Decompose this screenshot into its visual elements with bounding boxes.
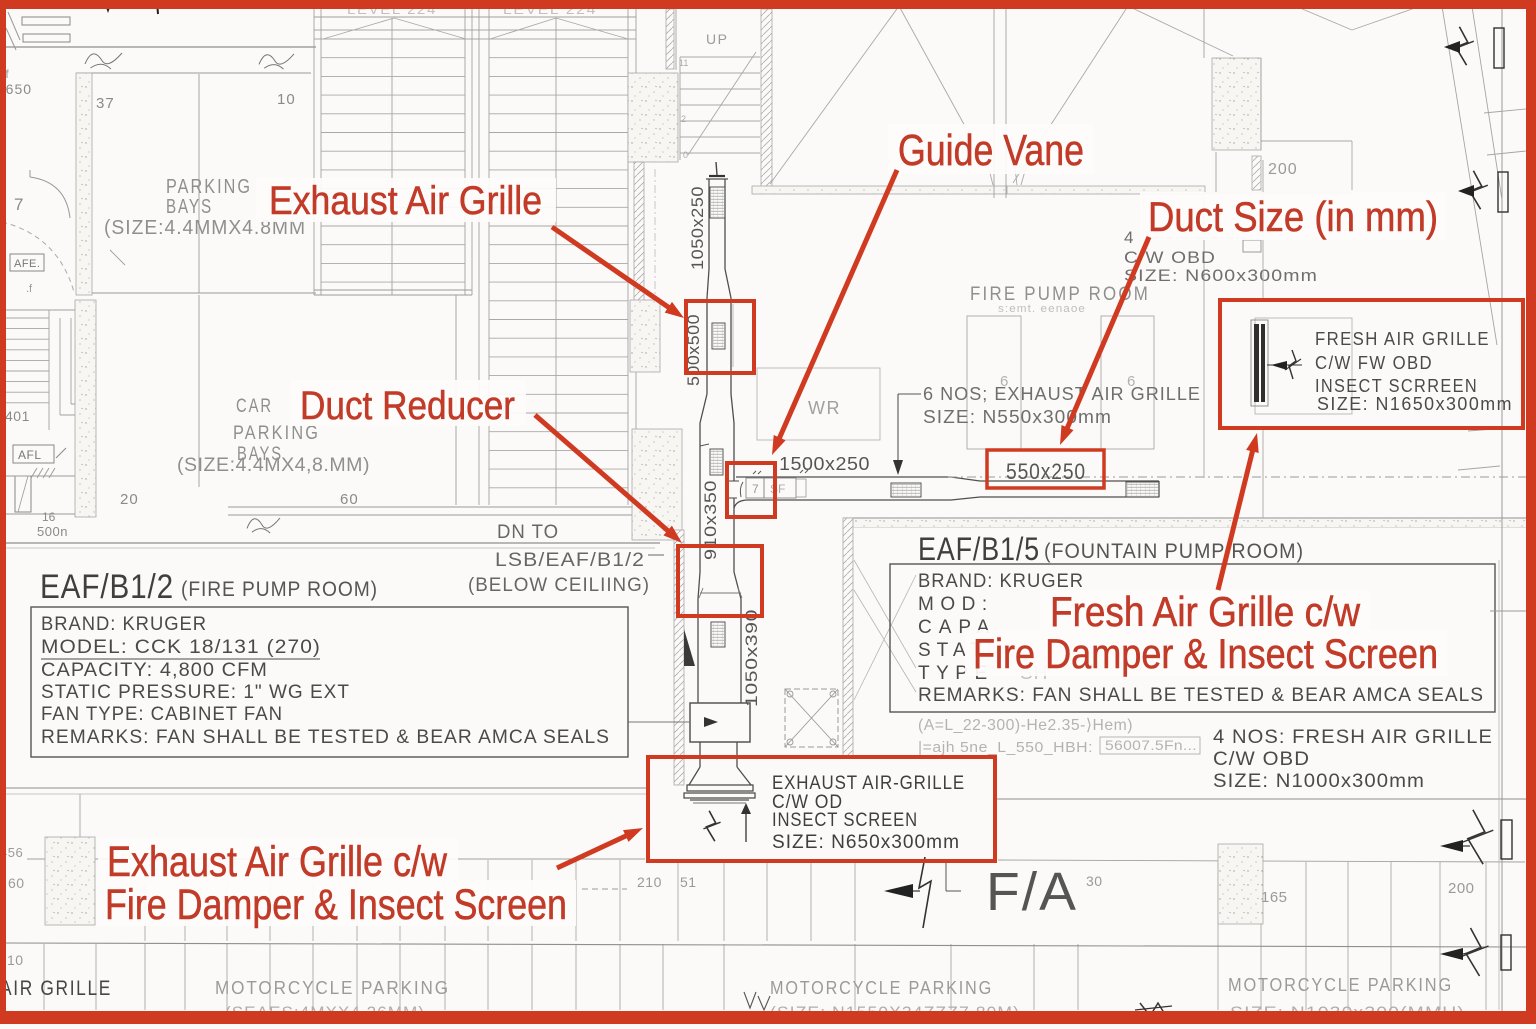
svg-text:Exhaust Air Grille c/w: Exhaust Air Grille c/w bbox=[107, 838, 448, 886]
svg-text:|=ajh 5ne_L_550_HBH:: |=ajh 5ne_L_550_HBH: bbox=[918, 739, 1093, 756]
svg-text:10: 10 bbox=[7, 952, 24, 968]
svg-text:1050x390: 1050x390 bbox=[742, 609, 761, 707]
svg-text:AFE.: AFE. bbox=[14, 258, 40, 270]
svg-text:.f: .f bbox=[26, 283, 33, 295]
svg-text:500n: 500n bbox=[37, 524, 68, 539]
svg-text:EAF/B1/2: EAF/B1/2 bbox=[40, 568, 174, 606]
svg-text:16: 16 bbox=[42, 510, 56, 524]
svg-text:6 NOS; EXHAUST AIR GRILLE: 6 NOS; EXHAUST AIR GRILLE bbox=[923, 384, 1201, 404]
svg-text:MOTORCYCLE PARKING: MOTORCYCLE PARKING bbox=[770, 978, 993, 998]
svg-text:MODEL: CCK 18/131 (270): MODEL: CCK 18/131 (270) bbox=[41, 637, 321, 658]
svg-text:Fire Damper & Insect Screen: Fire Damper & Insect Screen bbox=[105, 881, 567, 929]
svg-text:SIZE: N650x300mm: SIZE: N650x300mm bbox=[772, 832, 960, 853]
svg-text:FAN TYPE: CABINET FAN: FAN TYPE: CABINET FAN bbox=[41, 704, 283, 725]
svg-text:F/A: F/A bbox=[986, 862, 1078, 922]
svg-text:Exhaust Air Grille: Exhaust Air Grille bbox=[269, 179, 542, 223]
svg-text:Duct Size (in mm): Duct Size (in mm) bbox=[1148, 193, 1438, 240]
svg-text:BAYS: BAYS bbox=[166, 196, 213, 218]
svg-text:SIZE: N1650x300mm: SIZE: N1650x300mm bbox=[1317, 394, 1513, 414]
svg-text:REMARKS: FAN SHALL BE TEST: REMARKS: FAN SHALL BE TESTED & BEAR AMCA… bbox=[41, 727, 610, 748]
svg-text:MOTORCYCLE PARKING: MOTORCYCLE PARKING bbox=[215, 978, 450, 998]
svg-text:UP: UP bbox=[706, 31, 728, 47]
svg-text:51: 51 bbox=[680, 874, 697, 890]
svg-text:37: 37 bbox=[96, 95, 115, 112]
svg-text:200: 200 bbox=[1268, 161, 1298, 178]
svg-text:SIZE: N600x300mm: SIZE: N600x300mm bbox=[1124, 266, 1318, 285]
svg-text:0: 0 bbox=[683, 150, 688, 160]
svg-text:(FIRE PUMP ROOM): (FIRE PUMP ROOM) bbox=[181, 578, 378, 601]
svg-text:MOTORCYCLE PARKING: MOTORCYCLE PARKING bbox=[1228, 975, 1453, 995]
svg-text:C/W FW OBD: C/W FW OBD bbox=[1315, 353, 1433, 373]
svg-text:SIZE: N1000x300mm: SIZE: N1000x300mm bbox=[1213, 771, 1425, 792]
svg-text:1500x250: 1500x250 bbox=[779, 454, 870, 474]
svg-text:10: 10 bbox=[277, 91, 296, 108]
svg-text:(FOUNTAIN PUMP ROOM): (FOUNTAIN PUMP ROOM) bbox=[1044, 540, 1304, 563]
svg-text:CAR: CAR bbox=[236, 396, 273, 417]
svg-text:EXHAUST AIR-GRILLE: EXHAUST AIR-GRILLE bbox=[772, 773, 965, 794]
svg-text:AFL: AFL bbox=[18, 448, 42, 462]
svg-text:7: 7 bbox=[752, 482, 759, 496]
svg-text:EAF/B1/5: EAF/B1/5 bbox=[918, 531, 1040, 567]
svg-text:DN TO: DN TO bbox=[497, 522, 559, 543]
svg-text:Fresh Air Grille c/w: Fresh Air Grille c/w bbox=[1050, 588, 1361, 635]
svg-text:550x250: 550x250 bbox=[1006, 459, 1086, 484]
svg-text:INSECT SCREEN: INSECT SCREEN bbox=[772, 810, 918, 831]
svg-text:Fire Damper & Insect Screen: Fire Damper & Insect Screen bbox=[973, 630, 1438, 677]
svg-text:s:emt. eenaoe: s:emt. eenaoe bbox=[998, 303, 1086, 315]
svg-text:CAPACITY: 4,800 CFM: CAPACITY: 4,800 CFM bbox=[41, 660, 268, 681]
svg-text:(BELOW CEILIING): (BELOW CEILIING) bbox=[468, 575, 650, 596]
svg-text:SF: SF bbox=[770, 482, 785, 496]
svg-text:SIZE: N550x300mm: SIZE: N550x300mm bbox=[923, 407, 1112, 427]
svg-text:PARKING: PARKING bbox=[166, 176, 252, 198]
svg-text:1050x250: 1050x250 bbox=[688, 186, 707, 270]
svg-text:STATIC PRESSURE: 1" WG EXT: STATIC PRESSURE: 1" WG EXT bbox=[41, 682, 350, 703]
svg-text:BRAND: KRUGER: BRAND: KRUGER bbox=[41, 614, 207, 635]
svg-text:401: 401 bbox=[5, 408, 30, 424]
svg-text:4: 4 bbox=[1124, 228, 1133, 247]
svg-text:7: 7 bbox=[14, 195, 23, 214]
svg-text:MOD:: MOD: bbox=[918, 594, 994, 615]
svg-text:60: 60 bbox=[340, 491, 359, 508]
svg-text:20: 20 bbox=[120, 491, 139, 508]
svg-text:INSECT SCRREEN: INSECT SCRREEN bbox=[1315, 376, 1478, 396]
svg-text:LSB/EAF/B1/2: LSB/EAF/B1/2 bbox=[495, 550, 645, 571]
svg-text:Guide Vane: Guide Vane bbox=[898, 126, 1084, 175]
svg-text:56007.5Fn...: 56007.5Fn... bbox=[1105, 737, 1197, 753]
svg-text:200: 200 bbox=[1448, 880, 1475, 897]
svg-text:Duct Reducer: Duct Reducer bbox=[300, 384, 515, 428]
svg-text:2: 2 bbox=[681, 114, 686, 124]
svg-text:60: 60 bbox=[8, 875, 25, 891]
svg-text:REMARKS: FAN SHALL BE TEST: REMARKS: FAN SHALL BE TESTED & BEAR AMCA… bbox=[918, 685, 1484, 706]
svg-text:WR: WR bbox=[808, 398, 841, 418]
svg-text:(A=L_22-300)-He2.35-⟩Hem): (A=L_22-300)-He2.35-⟩Hem) bbox=[918, 717, 1133, 734]
svg-text:165: 165 bbox=[1261, 889, 1288, 906]
svg-text:C/W OBD: C/W OBD bbox=[1213, 749, 1310, 770]
svg-text:AIR GRILLE: AIR GRILLE bbox=[0, 977, 112, 1000]
svg-text:30: 30 bbox=[1086, 873, 1103, 889]
svg-text:210: 210 bbox=[637, 874, 662, 890]
svg-text:4 NOS: FRESH AIR GRILLE: 4 NOS: FRESH AIR GRILLE bbox=[1213, 727, 1493, 748]
svg-text:FRESH AIR GRILLE: FRESH AIR GRILLE bbox=[1315, 329, 1490, 349]
svg-text:(SIZE:4.4MX4,8.MM): (SIZE:4.4MX4,8.MM) bbox=[177, 455, 370, 476]
